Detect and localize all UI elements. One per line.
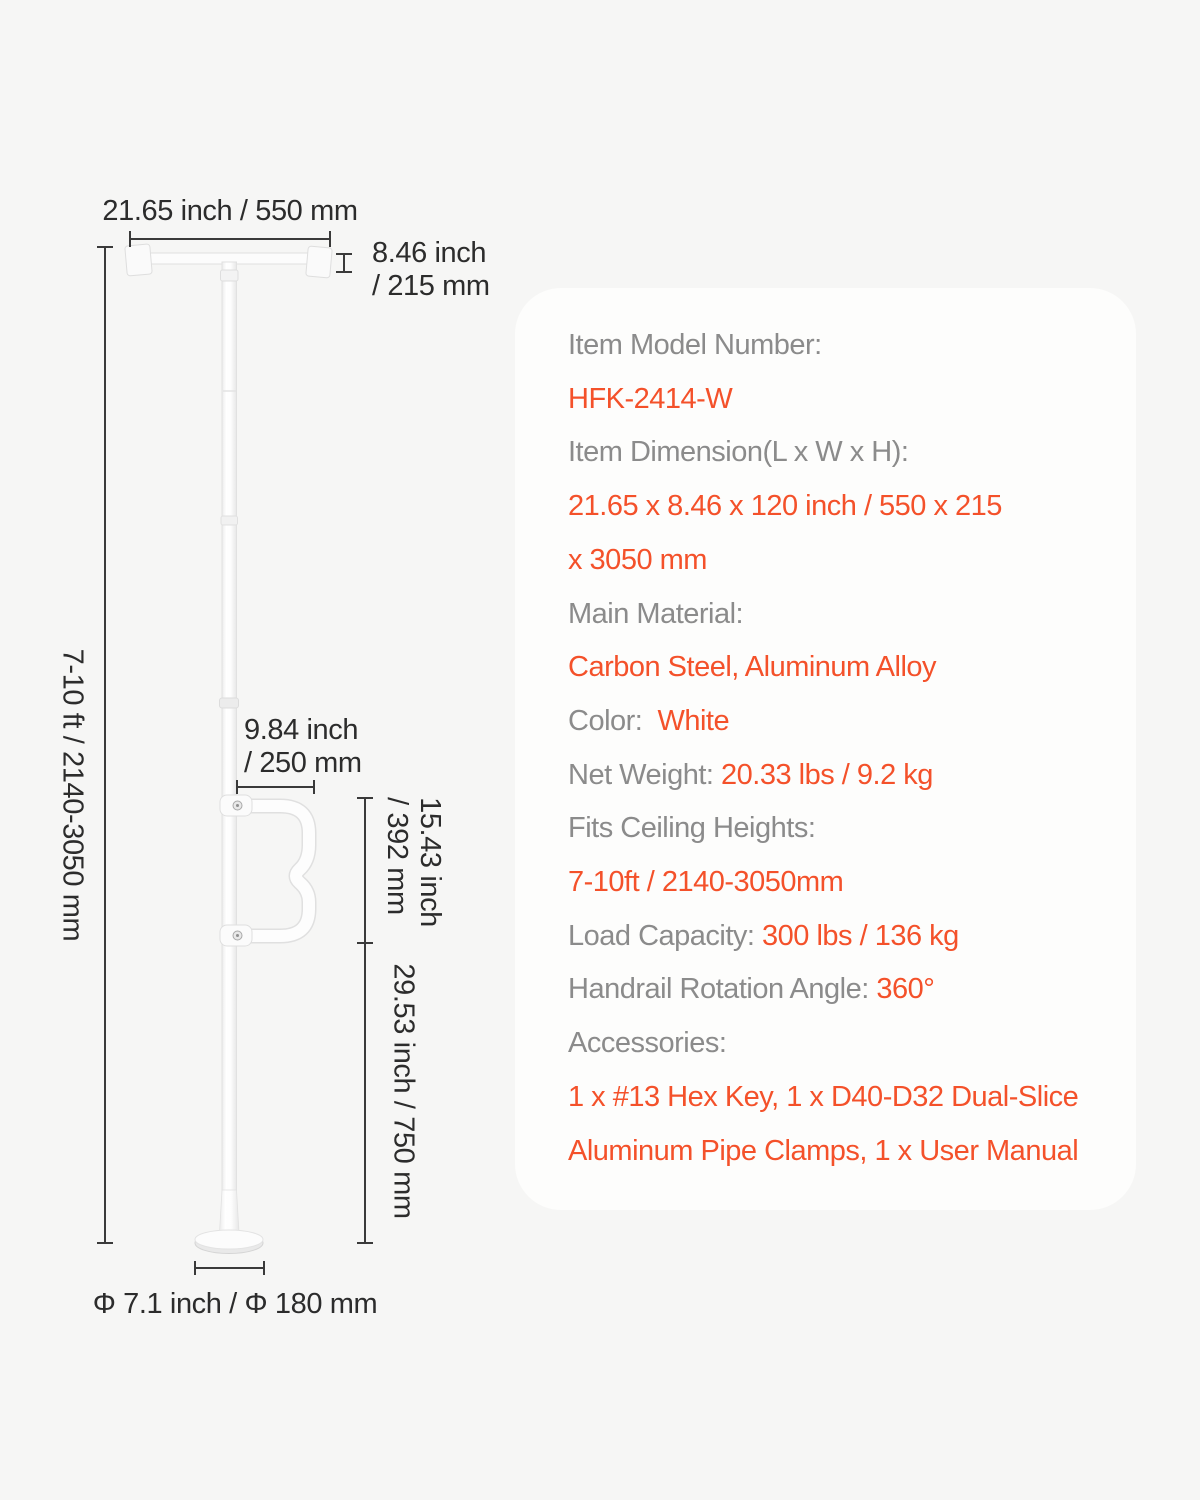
dim-label-lower-section: 29.53 inch / 750 mm bbox=[387, 963, 420, 1218]
pole-sleeve-end bbox=[221, 516, 238, 525]
dim-label-handrail-span: 15.43 inch / 392 mm bbox=[380, 797, 446, 927]
spec-value: HFK-2414-W bbox=[568, 383, 732, 415]
dim-label-ceiling-pad-line1: 8.46 inch bbox=[372, 237, 490, 270]
dim-label-ceiling-pad-line2: / 215 mm bbox=[372, 270, 490, 303]
spec-label: Main Material: bbox=[568, 598, 743, 630]
spec-label: Handrail Rotation Angle: bbox=[568, 973, 876, 1005]
spec-row-accessories: Accessories: bbox=[568, 1017, 1106, 1071]
spec-row-ceiling-heights-value: 7-10ft / 2140-3050mm bbox=[568, 856, 1106, 910]
spec-label: Color: bbox=[568, 705, 657, 737]
spec-label: Accessories: bbox=[568, 1027, 726, 1059]
spec-label: Net Weight: bbox=[568, 759, 721, 791]
spec-label: Item Model Number: bbox=[568, 329, 822, 361]
spec-row-material-value: Carbon Steel, Aluminum Alloy bbox=[568, 641, 1106, 695]
product-spec-infographic: { "page": { "background": "#F6F6F5" }, "… bbox=[0, 0, 1200, 1500]
spec-row-dimension-value2: x 3050 mm bbox=[568, 534, 1106, 588]
ceiling-pad-right bbox=[306, 246, 333, 278]
dim-label-base-diameter: Φ 7.1 inch / Φ 180 mm bbox=[85, 1288, 385, 1321]
spec-value: x 3050 mm bbox=[568, 544, 707, 576]
spec-card: Item Model Number: HFK-2414-W Item Dimen… bbox=[515, 288, 1136, 1210]
spec-value: 300 lbs / 136 kg bbox=[762, 920, 959, 952]
dim-label-handrail-span-line2: / 392 mm bbox=[380, 797, 413, 927]
spec-value: 7-10ft / 2140-3050mm bbox=[568, 866, 843, 898]
spec-row-color: Color: White bbox=[568, 695, 1106, 749]
spec-row-weight: Net Weight: 20.33 lbs / 9.2 kg bbox=[568, 749, 1106, 803]
spec-row-accessories-value1: 1 x #13 Hex Key, 1 x D40-D32 Dual-Slice bbox=[568, 1071, 1106, 1125]
spec-value: 360° bbox=[876, 973, 934, 1005]
spec-value: 20.33 lbs / 9.2 kg bbox=[721, 759, 933, 791]
dim-label-handrail-reach: 9.84 inch / 250 mm bbox=[244, 714, 362, 780]
spec-label: Load Capacity: bbox=[568, 920, 762, 952]
spec-value: Aluminum Pipe Clamps, 1 x User Manual bbox=[568, 1135, 1078, 1167]
spec-label: Fits Ceiling Heights: bbox=[568, 812, 815, 844]
spec-value: 1 x #13 Hex Key, 1 x D40-D32 Dual-Slice bbox=[568, 1081, 1078, 1113]
spec-row-dimension: Item Dimension(L x W x H): bbox=[568, 426, 1106, 480]
spec-value: 21.65 x 8.46 x 120 inch / 550 x 215 bbox=[568, 490, 1002, 522]
dim-label-handrail-reach-line2: / 250 mm bbox=[244, 747, 362, 780]
spec-row-model: Item Model Number: bbox=[568, 319, 1106, 373]
spec-label: Item Dimension(L x W x H): bbox=[568, 436, 908, 468]
spec-value: Carbon Steel, Aluminum Alloy bbox=[568, 651, 936, 683]
ceiling-pad-left bbox=[125, 244, 153, 276]
spec-row-load-capacity: Load Capacity: 300 lbs / 136 kg bbox=[568, 910, 1106, 964]
pole-collar-top bbox=[221, 270, 239, 281]
floor-base bbox=[195, 1190, 263, 1254]
dim-label-pole-height: 7-10 ft / 2140-3050 mm bbox=[56, 649, 89, 942]
spec-row-material: Main Material: bbox=[568, 588, 1106, 642]
pole-collar-mid bbox=[220, 698, 239, 708]
spec-row-ceiling-heights: Fits Ceiling Heights: bbox=[568, 802, 1106, 856]
spec-value: White bbox=[657, 705, 729, 737]
spec-row-rotation-angle: Handrail Rotation Angle: 360° bbox=[568, 963, 1106, 1017]
tension-pole bbox=[220, 262, 239, 1237]
spec-row-model-value: HFK-2414-W bbox=[568, 373, 1106, 427]
spec-row-accessories-value2: Aluminum Pipe Clamps, 1 x User Manual bbox=[568, 1125, 1106, 1179]
dim-label-handrail-span-line1: 15.43 inch bbox=[413, 797, 446, 927]
dim-label-top-width: 21.65 inch / 550 mm bbox=[80, 195, 380, 228]
spec-row-dimension-value1: 21.65 x 8.46 x 120 inch / 550 x 215 bbox=[568, 480, 1106, 534]
dim-label-ceiling-pad: 8.46 inch / 215 mm bbox=[372, 237, 490, 303]
dim-label-handrail-reach-line1: 9.84 inch bbox=[244, 714, 362, 747]
